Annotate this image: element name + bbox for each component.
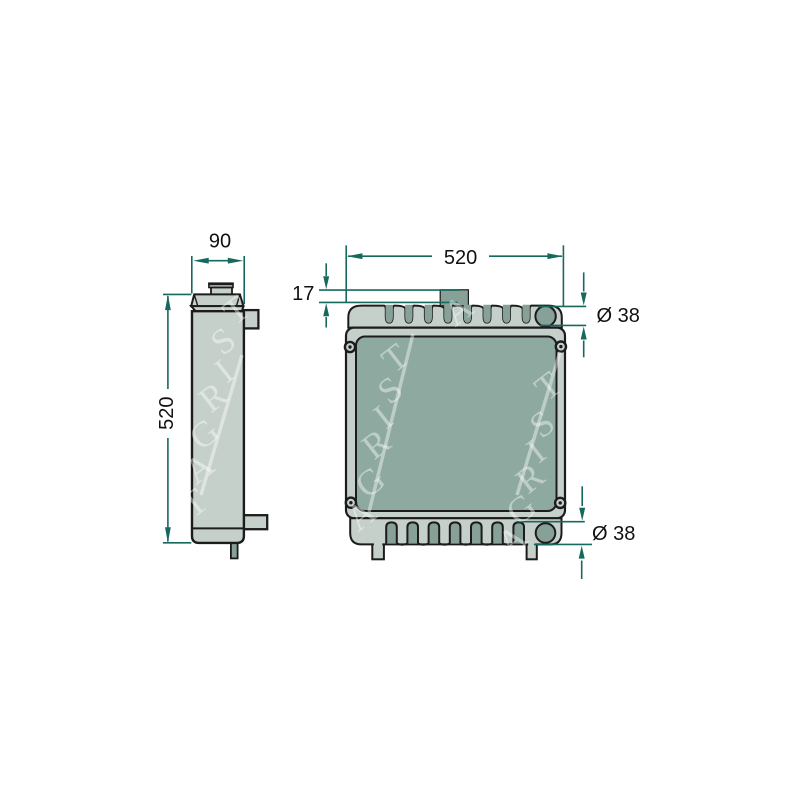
svg-text:17: 17 <box>292 283 314 305</box>
svg-text:520: 520 <box>444 247 477 269</box>
svg-text:520: 520 <box>156 397 178 430</box>
svg-text:Ø 38: Ø 38 <box>597 305 640 327</box>
svg-text:90: 90 <box>209 231 231 253</box>
svg-text:Ø 38: Ø 38 <box>592 523 635 545</box>
